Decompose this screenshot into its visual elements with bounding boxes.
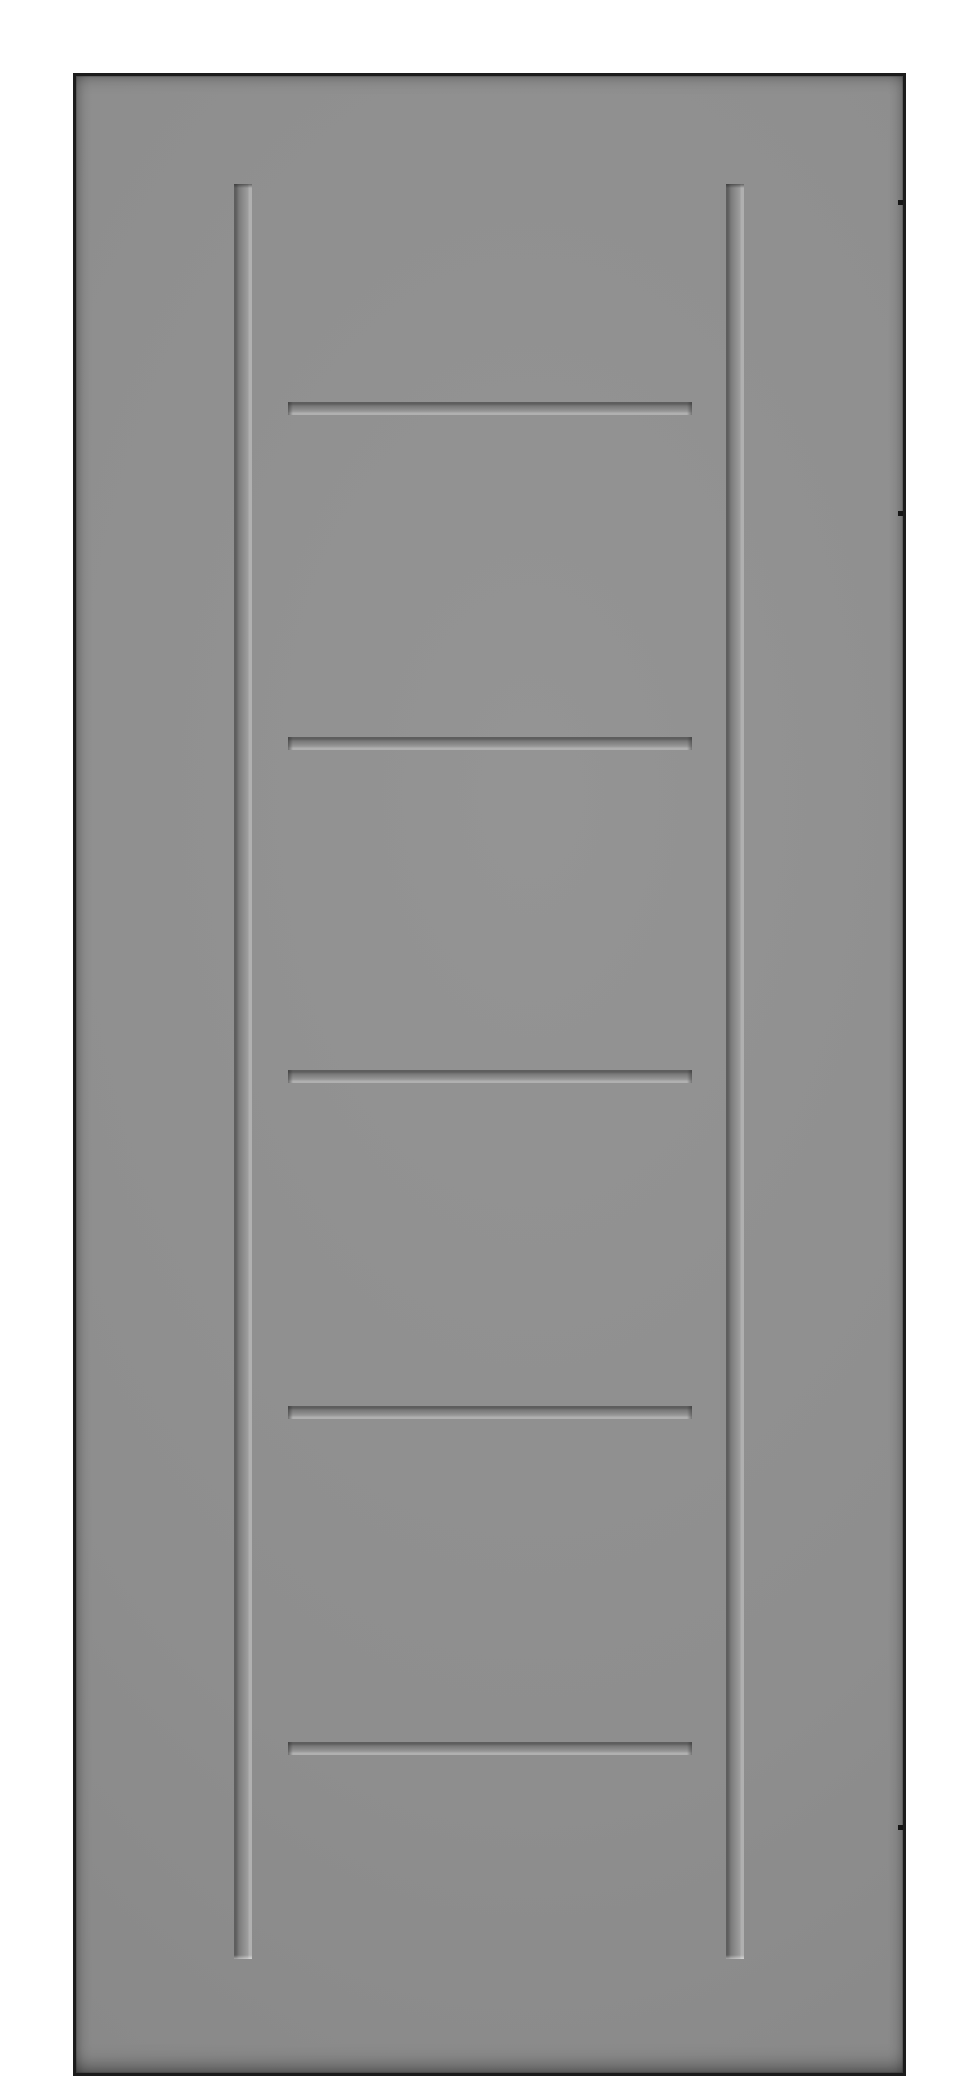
horizontal-groove-2 <box>288 737 692 750</box>
horizontal-groove-3 <box>288 1070 692 1083</box>
vertical-groove-left <box>234 184 252 1959</box>
door-slab <box>73 73 906 2076</box>
horizontal-groove-1 <box>288 402 692 415</box>
horizontal-groove-5 <box>288 1742 692 1755</box>
hinge-mark-bottom <box>898 1825 903 1830</box>
vertical-groove-right <box>726 184 744 1959</box>
horizontal-groove-4 <box>288 1406 692 1419</box>
hinge-mark-top <box>898 200 903 205</box>
product-image-canvas <box>0 0 980 2100</box>
hinge-mark-upper <box>898 511 903 516</box>
